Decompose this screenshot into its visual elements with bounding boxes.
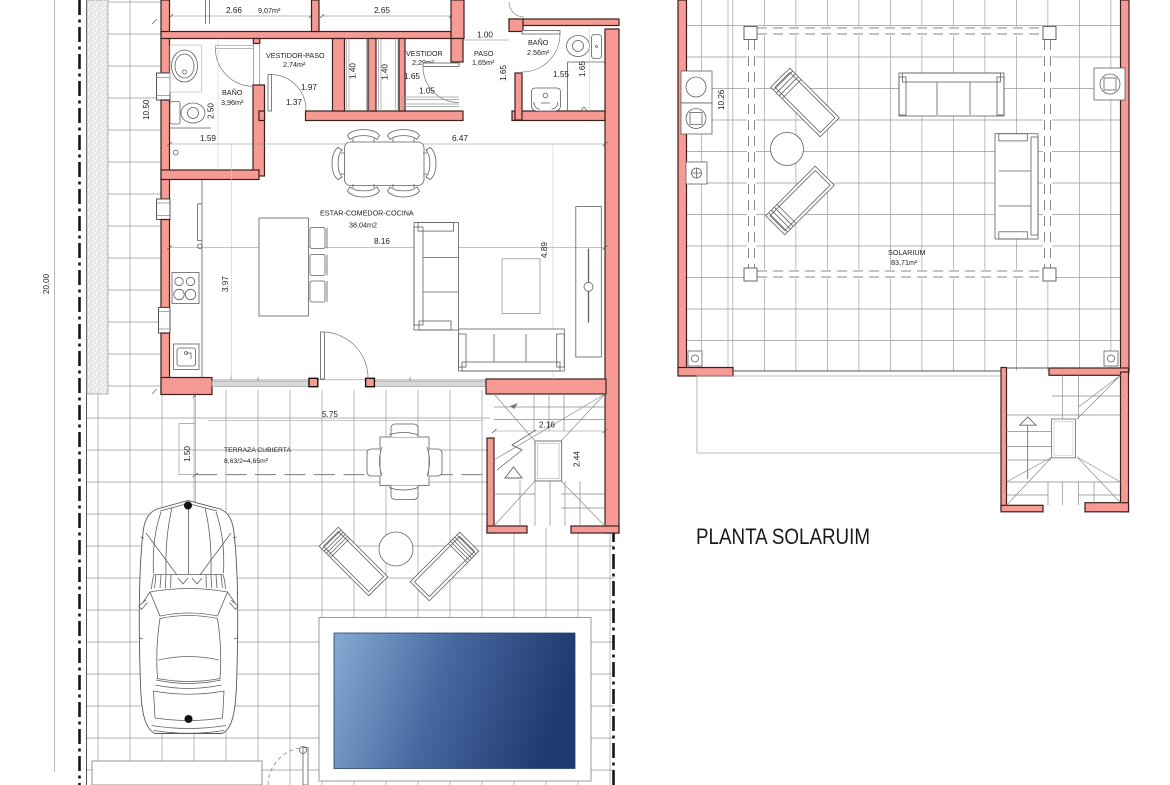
- svg-text:2,74m²: 2,74m²: [283, 60, 306, 69]
- svg-text:TERRAZA CUBIERTA: TERRAZA CUBIERTA: [224, 447, 291, 454]
- svg-text:5.75: 5.75: [322, 410, 338, 419]
- svg-text:83,71m²: 83,71m²: [891, 258, 918, 267]
- svg-text:9,07m²: 9,07m²: [258, 6, 281, 15]
- svg-text:VESTIDOR: VESTIDOR: [406, 49, 443, 58]
- svg-text:1.65: 1.65: [499, 65, 508, 81]
- svg-text:BAÑO: BAÑO: [528, 38, 549, 47]
- svg-text:BAÑO: BAÑO: [222, 88, 243, 97]
- svg-text:1.40: 1.40: [381, 64, 390, 80]
- svg-text:1,65m²: 1,65m²: [472, 58, 495, 67]
- svg-text:3.97: 3.97: [221, 276, 230, 292]
- svg-text:PLANTA SOLARUIM: PLANTA SOLARUIM: [696, 524, 870, 549]
- svg-text:1.55: 1.55: [553, 70, 569, 79]
- svg-text:2.44: 2.44: [573, 451, 582, 467]
- svg-text:8.16: 8.16: [374, 237, 390, 246]
- svg-text:SOLARIUM: SOLARIUM: [888, 248, 926, 257]
- svg-text:2.65: 2.65: [374, 6, 390, 15]
- svg-text:1.97: 1.97: [301, 83, 317, 92]
- svg-text:1.00: 1.00: [477, 31, 493, 40]
- svg-text:1.65: 1.65: [404, 72, 420, 81]
- svg-text:1.59: 1.59: [200, 134, 216, 143]
- svg-text:1.40: 1.40: [349, 63, 358, 79]
- svg-text:ESTAR-COMEDOR-COCINA: ESTAR-COMEDOR-COCINA: [320, 209, 414, 218]
- svg-text:3,96m²: 3,96m²: [221, 98, 244, 107]
- svg-text:38,04m2: 38,04m2: [349, 221, 377, 230]
- svg-text:VESTIDOR-PASO: VESTIDOR-PASO: [266, 51, 325, 60]
- svg-text:4.89: 4.89: [540, 242, 549, 258]
- svg-text:2.56m²: 2.56m²: [527, 48, 550, 57]
- svg-text:20.00: 20.00: [42, 273, 51, 294]
- svg-text:1.50: 1.50: [183, 446, 192, 462]
- svg-text:2.16: 2.16: [539, 421, 555, 430]
- svg-text:10.50: 10.50: [142, 99, 151, 120]
- svg-text:2.50: 2.50: [207, 103, 216, 119]
- svg-text:8,63/2=4,65m²: 8,63/2=4,65m²: [224, 458, 269, 465]
- svg-text:6.47: 6.47: [452, 134, 468, 143]
- svg-text:PASO: PASO: [474, 49, 494, 58]
- svg-text:1.65: 1.65: [578, 61, 587, 77]
- svg-text:10.26: 10.26: [717, 89, 726, 110]
- svg-text:2.66: 2.66: [226, 6, 242, 15]
- svg-text:1.37: 1.37: [286, 98, 302, 107]
